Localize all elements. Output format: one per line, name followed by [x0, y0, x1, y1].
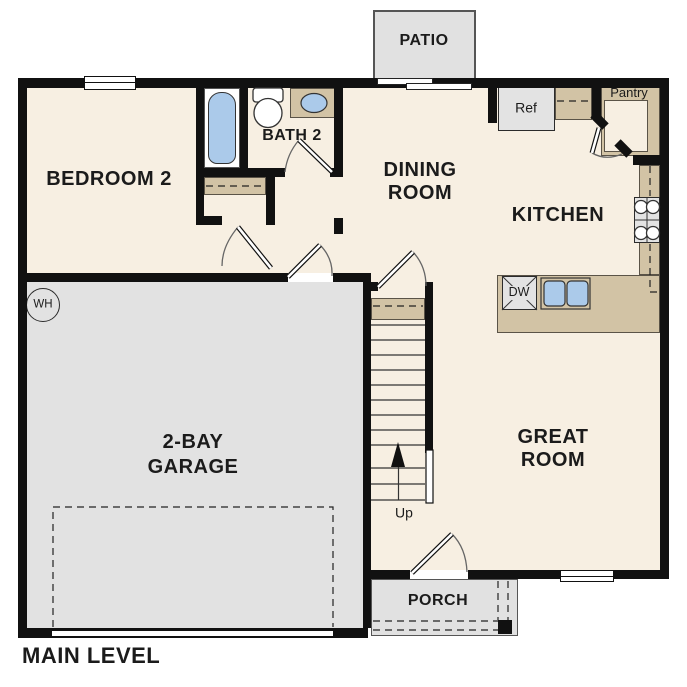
- wall-exterior-left: [18, 78, 27, 638]
- window-mullion: [85, 82, 135, 83]
- garage-floor: [27, 282, 363, 628]
- bathtub: [208, 92, 236, 164]
- wall-exterior-right: [660, 78, 669, 579]
- porch-label: PORCH: [408, 592, 468, 610]
- water-heater-label: WH: [33, 299, 52, 312]
- pantry-label: Pantry: [610, 86, 648, 100]
- wall-hall-stub: [334, 218, 343, 234]
- bedroom-closet-shelf: [204, 177, 266, 195]
- wall-stair-west: [363, 273, 371, 628]
- wall-bed-closet-east: [266, 177, 275, 225]
- kitchen-label: KITCHEN: [512, 204, 604, 226]
- dw-label: DW: [508, 286, 531, 300]
- ref-label: Ref: [515, 100, 537, 115]
- great-room-label-line1: GREAT: [517, 426, 588, 448]
- bedroom-window: [84, 76, 136, 90]
- dining-label-line2: ROOM: [388, 182, 452, 204]
- window-mullion: [561, 576, 613, 577]
- wall-bath-east: [334, 78, 343, 173]
- garage-door-opening: [52, 630, 333, 637]
- bath-vanity-counter: [290, 88, 338, 118]
- wall-kitchen-east-stub: [633, 155, 660, 165]
- main-level-title: MAIN LEVEL: [22, 644, 160, 668]
- stove: [634, 197, 660, 243]
- great-room-window: [560, 570, 614, 582]
- wall-tubroom-west: [196, 88, 204, 168]
- stair-closet-shelf: [371, 298, 425, 320]
- wall-tub-divider: [240, 88, 248, 168]
- bath2-label: BATH 2: [262, 127, 322, 145]
- garage-label-line2: GARAGE: [148, 456, 239, 478]
- wall-bed-closet-jamb: [196, 216, 222, 225]
- stairs-up-label: Up: [395, 505, 413, 520]
- dining-label-line1: DINING: [384, 159, 457, 181]
- great-room-label-line2: ROOM: [521, 449, 585, 471]
- garage-label-line1: 2-BAY: [163, 431, 224, 453]
- floor-plan: PATIO BEDROOM 2 BATH 2 DINING ROOM KITCH…: [0, 0, 687, 687]
- wall-stair-east: [425, 282, 433, 453]
- wall-stair-closet-jamb-right: [427, 282, 433, 291]
- patio-label: PATIO: [399, 32, 448, 50]
- patio-slider-panel-right: [406, 83, 472, 90]
- wall-bath-south: [196, 168, 285, 177]
- wall-dining-kitchen-stub: [488, 78, 497, 123]
- bedroom2-label: BEDROOM 2: [46, 168, 172, 190]
- wall-stair-closet-jamb-left: [371, 282, 378, 291]
- kitchen-counter-by-ref: [555, 86, 592, 120]
- wall-garage-top-left: [18, 273, 288, 282]
